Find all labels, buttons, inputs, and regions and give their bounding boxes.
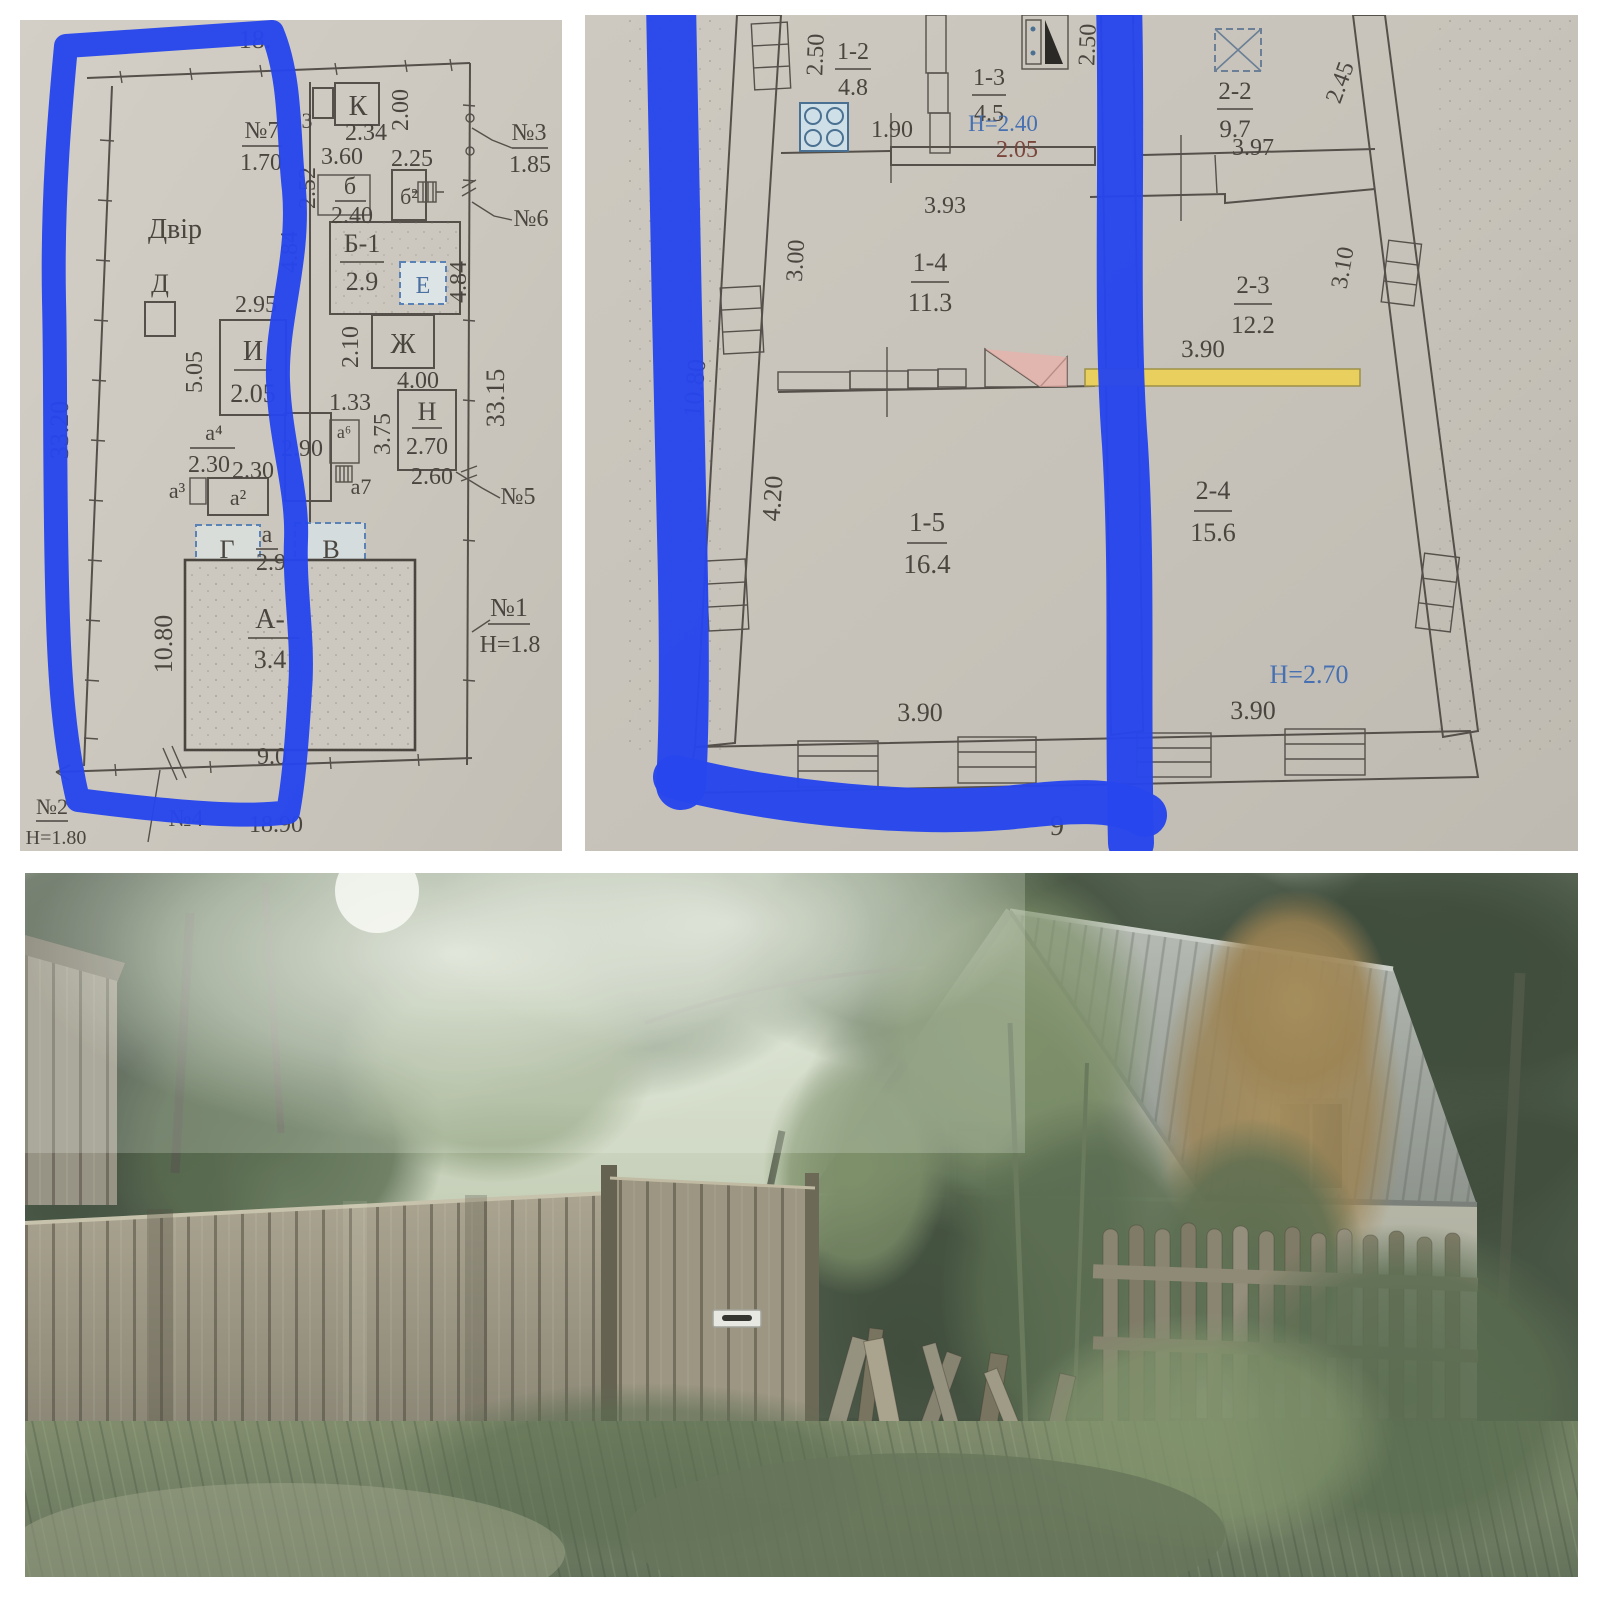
label-V: В: [322, 535, 339, 564]
label-N: Н: [418, 397, 437, 426]
dim-420: 4.20: [756, 475, 788, 522]
site-plan-panel: 18. 3 К 2.34 2.00 3.60 2.25 №7 1.70 б 2.…: [20, 20, 562, 851]
floor-plan-drawing: 1-2 4.8 1.90 2.50 2.50 1-3 4.5 Н=2.40 2.…: [585, 15, 1578, 851]
dim-300: 3.00: [782, 239, 810, 282]
dim-200: 2.00: [388, 89, 414, 131]
room-1-5: 1-5: [909, 507, 945, 537]
dim-A-h: 3.4: [254, 645, 287, 674]
house-photo-rendering: [25, 873, 1578, 1577]
dim-484-right: 4.84: [446, 261, 472, 303]
stove-icon: [800, 103, 848, 151]
dim-1080: 10.80: [149, 615, 178, 674]
area-1-5: 16.4: [903, 549, 951, 579]
dim-a-small-h: 2.9: [256, 550, 286, 576]
height-270: Н=2.70: [1270, 660, 1349, 689]
dim-260: 2.60: [411, 464, 453, 490]
dim-360: 3.60: [321, 144, 363, 170]
room-2-3: 2-3: [1236, 272, 1269, 299]
dim-225: 2.25: [391, 146, 433, 172]
outside-speckle-right: [1435, 15, 1578, 755]
label-a-small: а: [262, 522, 273, 548]
haze-overlay: [25, 873, 1578, 1577]
label-K: К: [349, 91, 368, 122]
dim-397: 3.97: [1232, 135, 1274, 161]
dim-210: 2.10: [338, 326, 364, 368]
area-2-4: 15.6: [1190, 518, 1236, 547]
area-1-4: 11.3: [908, 288, 953, 317]
site-plan-drawing: 18. 3 К 2.34 2.00 3.60 2.25 №7 1.70 б 2.…: [20, 20, 562, 851]
label-a2: а²: [230, 485, 247, 510]
dim-234: 2.34: [345, 120, 387, 146]
label-A: А-: [255, 604, 285, 635]
room-1-4: 1-4: [913, 248, 948, 277]
dim-393: 3.93: [924, 193, 966, 219]
floor-plan-panel: 1-2 4.8 1.90 2.50 2.50 1-3 4.5 Н=2.40 2.…: [585, 15, 1578, 851]
dim-250-left: 2.50: [802, 33, 829, 76]
label-a3: а³: [169, 478, 186, 503]
label-no7: №7: [245, 118, 280, 144]
room-1-3: 1-3: [973, 65, 1005, 91]
label-b: б: [344, 174, 356, 200]
label-D: Д: [151, 269, 169, 298]
label-a7: а7: [351, 474, 372, 499]
dim-375: 3.75: [370, 413, 396, 455]
room-2-4: 2-4: [1196, 476, 1231, 505]
label-a4: а⁴: [205, 420, 223, 445]
label-b2: б²: [400, 184, 418, 209]
label-a6: а⁶: [337, 422, 351, 442]
dim-400: 4.00: [397, 368, 439, 394]
dim-frag3: 3: [302, 108, 313, 133]
label-no3: №3: [512, 120, 547, 146]
dim-295: 2.95: [235, 292, 277, 318]
label-G: Г: [219, 535, 234, 564]
label-no5: №5: [501, 484, 536, 510]
height-240: Н=2.40: [968, 111, 1038, 136]
dim-230: 2.30: [232, 458, 274, 484]
dim-390-s2: 3.90: [1230, 696, 1276, 725]
label-E: Е: [416, 273, 431, 299]
room-2-2: 2-2: [1218, 78, 1251, 105]
room-1-2: 1-2: [837, 39, 869, 65]
label-dvir: Двір: [148, 214, 202, 245]
label-no1: №1: [490, 593, 528, 622]
dim-205: 2.05: [996, 137, 1038, 163]
area-1-2: 4.8: [838, 75, 868, 101]
dim-133: 1.33: [329, 390, 371, 416]
dim-390-mid: 3.90: [1181, 336, 1225, 363]
marker-middle-stroke: [1119, 15, 1131, 843]
dim-a4-h: 2.30: [188, 452, 230, 478]
label-no6: №6: [514, 206, 549, 232]
dim-390-s1: 3.90: [897, 698, 943, 727]
label-no2: №2: [36, 794, 68, 819]
dim-505: 5.05: [182, 351, 208, 393]
dim-N-h: 2.70: [406, 434, 448, 460]
area-2-3: 12.2: [1231, 312, 1275, 339]
label-Zh: Ж: [390, 329, 416, 360]
label-B1: Б-1: [344, 229, 381, 258]
paper-background: [585, 15, 1578, 851]
dim-3315: 33.15: [481, 369, 510, 428]
dim-B1-h: 2.9: [346, 267, 379, 296]
dim-no1-h: Н=1.8: [480, 632, 541, 658]
dim-190: 1.90: [871, 117, 913, 143]
label-I: И: [243, 336, 263, 367]
dim-no2-h: Н=1.80: [26, 827, 87, 849]
marker-left-stroke: [671, 15, 684, 785]
dim-no7-h: 1.70: [240, 150, 282, 176]
house-photo: [25, 873, 1578, 1577]
dim-b-h: 2.40: [331, 203, 373, 229]
dim-no3-h: 1.85: [509, 152, 551, 178]
